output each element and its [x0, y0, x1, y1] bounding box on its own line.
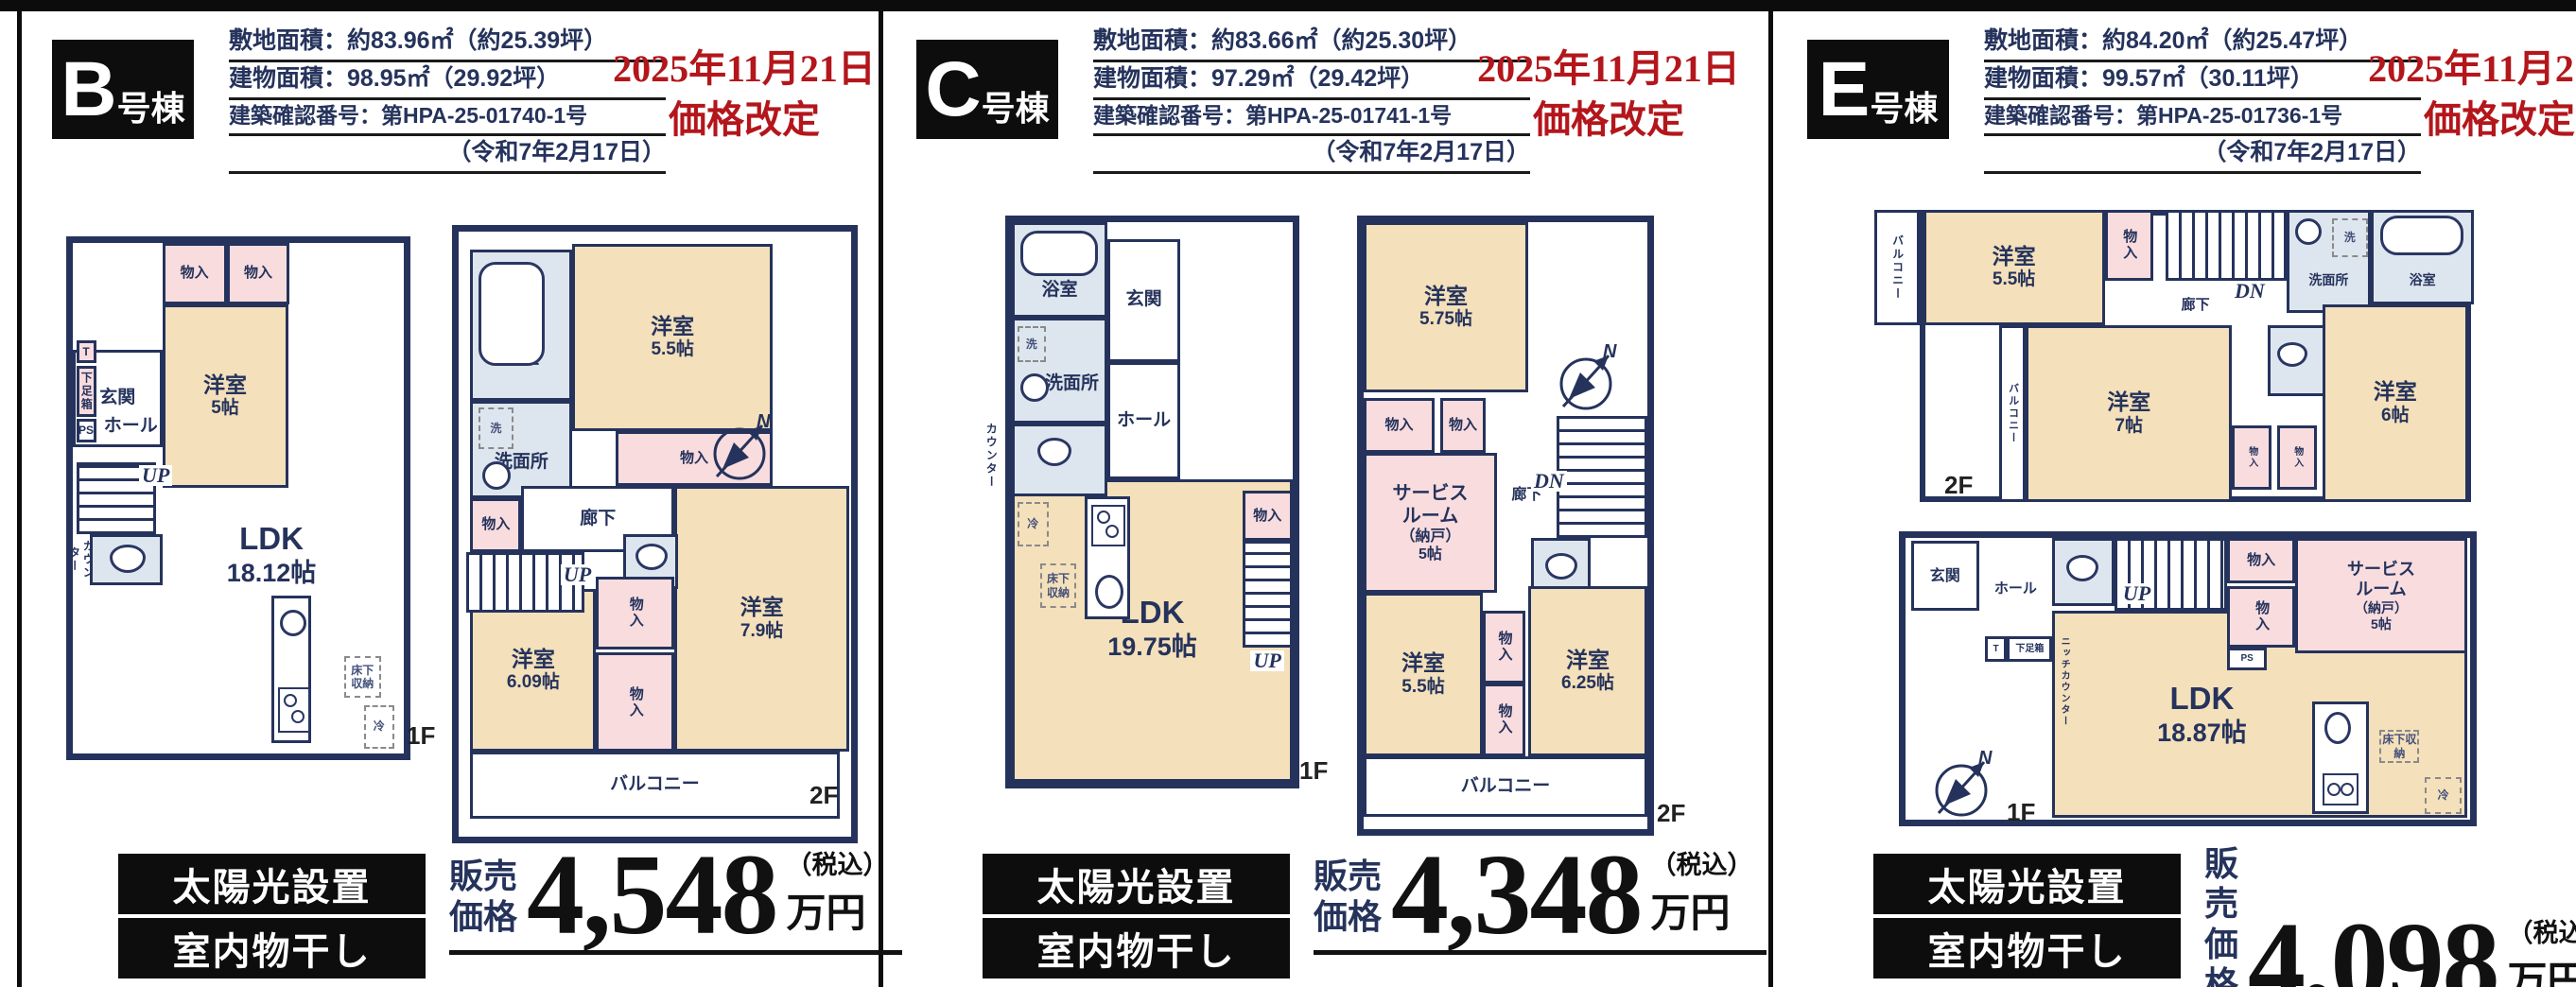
notice-date: 2025年11月21日: [607, 43, 881, 95]
room-name: バルコニー: [1461, 776, 1551, 798]
washer-space: 洗: [479, 407, 513, 450]
room-name: バルコニー: [2006, 383, 2018, 444]
top-border-bar: [0, 0, 2576, 11]
room-name: サービス ルーム: [1393, 482, 1469, 528]
room-name: 物入: [1449, 417, 1477, 434]
badge-solar: 太陽光設置: [118, 854, 426, 914]
stairs-up-label: UP: [1250, 650, 1283, 671]
price-suffix: （税込） 万円: [1651, 844, 1753, 943]
site-area: 敷地面積：約83.66㎡（約25.30坪）: [1093, 25, 1530, 62]
room-hall: ホール: [1107, 362, 1180, 479]
room-name: 廊下: [2182, 297, 2210, 314]
shoe-cabinet: 下足箱: [77, 366, 96, 417]
fridge-space: 冷: [1018, 502, 1049, 546]
notice-date: 2025年11月21日: [2362, 43, 2576, 95]
closet: 物入: [2277, 425, 2317, 491]
stairs-down: [2166, 210, 2287, 281]
room-size: 5帖: [211, 398, 239, 420]
room-name: 物入: [2120, 229, 2137, 261]
stove-icon: [1091, 505, 1125, 546]
room-hall: ホール: [1979, 546, 2053, 631]
stairs-up: [1243, 541, 1293, 647]
permit-number: 建築確認番号：第HPA-25-01740-1号: [229, 100, 666, 136]
room-name: 物入: [2246, 446, 2257, 469]
toilet-icon: [110, 545, 146, 573]
closet: 物入: [2232, 425, 2271, 491]
room-name: 洋室: [740, 595, 784, 621]
plan-b-1f: LDK 18.12帖 洋室 5帖 物入 物入 玄関 T 下足箱 PS ホール U…: [66, 236, 410, 760]
room-name: 物入: [1496, 703, 1513, 736]
room: 洋室 5.75帖: [1364, 222, 1528, 392]
fridge-space: 冷: [364, 705, 394, 749]
room-size: 7.9帖: [740, 621, 783, 643]
closet: 物入: [2105, 210, 2153, 281]
building-b-label: B 号棟: [52, 40, 194, 139]
toilet-icon: [1037, 438, 1071, 466]
stairs-down: [1557, 416, 1647, 537]
price-unit: 万円: [787, 881, 866, 939]
closet: 物入: [163, 243, 227, 304]
room-name: 洋室: [651, 314, 694, 340]
room-name: 洋室: [1566, 648, 1610, 674]
stairs-up-label: UP: [561, 564, 594, 585]
washer-space: 洗: [1018, 326, 1046, 362]
room-name: ニッチカウンター: [2058, 636, 2069, 727]
room-name: 物入: [2291, 446, 2303, 469]
floor-label: 2F: [1657, 799, 1685, 828]
room-name: 物入: [627, 686, 644, 719]
stairs-up-label: UP: [139, 465, 172, 486]
room-fill: [73, 570, 163, 753]
price-block: 販売 価格 4,098 （税込） 万円: [2204, 844, 2576, 987]
room-name: 洋室: [512, 647, 555, 673]
room: 洋室 7帖: [2026, 325, 2232, 502]
room-corridor: 廊下: [2153, 286, 2238, 325]
floor-storage: 床下収納: [2379, 730, 2419, 764]
room-size: 18.87帖: [2157, 718, 2247, 748]
closet: 物入: [596, 577, 674, 649]
room: 洋室 5.5帖: [1923, 210, 2105, 325]
room-name: 物入: [2247, 552, 2275, 569]
room-fill: [1486, 392, 1528, 453]
permit-date: （令和7年2月17日）: [229, 136, 666, 174]
floor-storage: 床下収納: [1040, 563, 1077, 608]
room: LDK 18.87帖: [2103, 665, 2301, 763]
floor-storage: 床下収納: [344, 656, 381, 697]
room: 洋室 7.9帖: [674, 486, 849, 753]
shoe-tag-t: T: [77, 340, 96, 363]
closet: 物入: [1243, 491, 1293, 541]
price-block: 販売 価格 4,548 （税込） 万円: [449, 844, 902, 955]
room-name: 浴室: [2410, 272, 2436, 288]
room-name: 洗: [1026, 338, 1037, 351]
closet: 物入: [1483, 684, 1525, 756]
price-prefix: 販売 価格: [449, 857, 517, 943]
balcony: バルコニー: [1999, 325, 2027, 502]
room-name: 物入: [181, 265, 209, 282]
building-area: 建物面積：99.57㎡（30.11坪）: [1984, 62, 2421, 100]
compass-icon: N: [1929, 749, 1997, 821]
room-name: 下足箱: [79, 372, 93, 411]
room-name: ホール: [1994, 580, 2037, 597]
stove-icon: [2323, 773, 2358, 805]
room-name: 洗: [490, 422, 501, 435]
room-size: 18.12帖: [227, 558, 317, 588]
room-name: 洋室: [1993, 244, 2036, 270]
room-name: 洋室: [2107, 390, 2150, 416]
room-name: 洋室: [1401, 650, 1445, 677]
room-name: 洋室: [203, 372, 247, 399]
floor-label: 1F: [407, 721, 435, 751]
room-name: 物入: [627, 597, 644, 629]
room-size: （納戸） 5帖: [1400, 528, 1460, 563]
kitchen-counter: [2312, 701, 2369, 814]
closet: 物入: [470, 498, 521, 553]
room-name: 洗: [2344, 231, 2356, 244]
room-name: 玄関: [1126, 289, 1162, 311]
room-name: LDK: [1121, 594, 1185, 632]
room-name: ホール: [104, 416, 158, 438]
room-name: 洋室: [2374, 379, 2417, 406]
balcony: バルコニー: [470, 752, 839, 818]
room-name: 冷: [2438, 788, 2449, 802]
fridge-space: 冷: [2425, 777, 2462, 814]
closet: 物入: [2227, 586, 2295, 649]
room-name: 物入: [2253, 600, 2270, 632]
price-prefix: 販売 価格: [1314, 857, 1382, 943]
building-suffix: 号棟: [1870, 81, 1938, 130]
room-name: バルコニー: [1890, 234, 1904, 301]
building-c-info: 敷地面積：約83.66㎡（約25.30坪） 建物面積：97.29㎡（29.42坪…: [1093, 25, 1530, 174]
sink-icon: [1020, 373, 1049, 402]
room-name: T: [82, 345, 89, 358]
building-suffix: 号棟: [982, 81, 1050, 130]
room-name: 冷: [374, 719, 385, 733]
closet: 物入: [2227, 538, 2295, 583]
price-suffix: （税込） 万円: [2508, 912, 2576, 987]
sink-icon: [280, 610, 306, 636]
room-size: 19.75帖: [1107, 632, 1197, 662]
flyer-page: B 号棟 敷地面積：約83.96㎡（約25.39坪） 建物面積：98.95㎡（2…: [0, 0, 2576, 987]
badge-solar: 太陽光設置: [983, 854, 1290, 914]
floor-label: 2F: [809, 781, 838, 810]
price-amount: 4,348: [1391, 848, 1642, 943]
niche-counter-tag: ニッチカウンター: [2049, 622, 2078, 740]
plan-c-1f: LDK 19.75帖 浴室 玄関 下足箱 洗面所 洗 ホール 冷 床下収納 物入: [1005, 216, 1299, 788]
building-letter: E: [1819, 51, 1871, 129]
price-revision-notice: 2025年11月21日 価格改定: [607, 43, 881, 146]
sink-icon: [2324, 712, 2351, 744]
room-size: 5.75帖: [1419, 309, 1472, 331]
permit-number: 建築確認番号：第HPA-25-01741-1号: [1093, 100, 1530, 136]
room-name: 下足箱: [2015, 644, 2044, 655]
room: 洋室 6.09帖: [470, 589, 596, 753]
kitchen-counter: [1085, 496, 1130, 619]
notice-date: 2025年11月21日: [1471, 43, 1746, 95]
permit-number: 建築確認番号：第HPA-25-01736-1号: [1984, 100, 2421, 136]
room-name: 物入: [680, 450, 708, 467]
room-name: PS: [78, 424, 94, 437]
pipe-space: PS: [77, 419, 96, 442]
permit-date: （令和7年2月17日）: [1984, 136, 2421, 174]
room-size: 5.5帖: [1993, 269, 2035, 291]
divider-b-c: [879, 11, 883, 987]
room-name: 物入: [481, 516, 510, 533]
room-service: サービス ルーム （納戸） 5帖: [1364, 453, 1497, 593]
building-letter: B: [61, 51, 116, 129]
badge-indoor-drying: 室内物干し: [983, 918, 1290, 978]
floor-label: 2F: [1944, 471, 1973, 500]
building-e-info: 敷地面積：約84.20㎡（約25.47坪） 建物面積：99.57㎡（30.11坪…: [1984, 25, 2421, 174]
balcony: バルコニー: [1364, 756, 1647, 817]
room-name: サービス ルーム: [2347, 560, 2415, 600]
room-name: 床下収納: [346, 664, 379, 691]
room-name: バルコニー: [610, 774, 700, 796]
site-area: 敷地面積：約83.96㎡（約25.39坪）: [229, 25, 666, 62]
room: LDK 19.75帖: [1054, 558, 1251, 698]
stove-icon: [278, 687, 310, 733]
washer-space: 洗: [2332, 218, 2368, 257]
notice-text: 価格改定: [2362, 95, 2576, 146]
divider-c-e: [1768, 11, 1773, 987]
bathtub-icon: [1020, 231, 1098, 276]
compass-icon: N: [1554, 342, 1622, 414]
closet: 物入: [227, 243, 290, 304]
room: 洋室 5.5帖: [1364, 593, 1483, 756]
building-area: 建物面積：97.29㎡（29.42坪）: [1093, 62, 1530, 100]
building-c-label: C 号棟: [916, 40, 1058, 139]
closet: 物入: [1364, 398, 1435, 453]
price-suffix: （税込） 万円: [787, 844, 889, 943]
closet: 物入: [1440, 398, 1486, 453]
badge-solar: 太陽光設置: [1873, 854, 2181, 914]
room-size: 7帖: [2115, 416, 2143, 438]
room-name: 冷: [1027, 517, 1038, 530]
notice-text: 価格改定: [607, 95, 881, 146]
plan-c-2f: 洋室 5.75帖 物入 物入 サービス ルーム （納戸） 5帖 廊下 DN 洋室…: [1357, 216, 1654, 836]
room-name: 物入: [1496, 631, 1513, 663]
room: 洋室 5.5帖: [572, 244, 773, 431]
building-letter: C: [925, 51, 981, 129]
room-name: カウンター: [984, 423, 998, 489]
price-revision-notice: 2025年11月21日 価格改定: [2362, 43, 2576, 146]
room-name: 物入: [244, 265, 272, 282]
room-name: ホール: [1117, 410, 1171, 432]
room-size: 6.09帖: [507, 672, 560, 694]
room: 洋室 5帖: [163, 304, 288, 488]
stairs-up-label: UP: [2120, 583, 2153, 604]
room-size: 6.25帖: [1561, 673, 1614, 695]
room-name: 洋室: [1424, 284, 1468, 310]
left-border-line: [17, 11, 22, 987]
price-unit: 万円: [1651, 881, 1731, 939]
room-name: 洗面所: [1045, 373, 1099, 395]
price-unit: 万円: [2508, 949, 2576, 987]
price-amount: 4,548: [527, 848, 777, 943]
room-name: T: [1993, 644, 1998, 655]
room-name: LDK: [2169, 680, 2234, 718]
compass-icon: N: [707, 412, 775, 484]
toilet-icon: [635, 544, 668, 570]
building-area: 建物面積：98.95㎡（29.92坪）: [229, 62, 666, 100]
room-size: （納戸） 5帖: [2355, 600, 2408, 632]
room-name: 廊下: [580, 509, 616, 530]
price-tax: （税込）: [1651, 844, 1753, 881]
room-name: PS: [2241, 653, 2254, 665]
pipe-space: PS: [2227, 648, 2267, 670]
price-block: 販売 価格 4,348 （税込） 万円: [1314, 844, 1767, 955]
room-service: サービス ルーム （納戸） 5帖: [2295, 538, 2467, 653]
bathtub-icon: [2380, 216, 2463, 255]
room-size: 5.5帖: [1401, 677, 1444, 699]
kitchen-counter: [271, 596, 311, 744]
price-revision-notice: 2025年11月21日 価格改定: [1471, 43, 1746, 146]
room-name: 洗面所: [2308, 272, 2348, 288]
floor-label: 1F: [1299, 756, 1328, 786]
price-amount: 4,098: [2248, 916, 2498, 987]
sink-icon: [482, 461, 511, 490]
building-suffix: 号棟: [117, 81, 185, 130]
sink-icon: [1095, 575, 1123, 609]
price-prefix: 販売 価格: [2204, 844, 2238, 987]
badge-indoor-drying: 室内物干し: [1873, 918, 2181, 978]
room-size: 5.5帖: [651, 339, 693, 361]
room-name: 玄関: [1930, 567, 1960, 585]
shoe-cabinet: 下足箱: [2007, 636, 2052, 662]
room: 洋室 6帖: [2323, 304, 2468, 502]
room-hall: ホール: [99, 396, 163, 458]
room-name: 浴室: [1041, 280, 1077, 302]
counter-tag: カウンター: [73, 534, 90, 585]
room-name: LDK: [239, 520, 304, 558]
building-b-info: 敷地面積：約83.96㎡（約25.39坪） 建物面積：98.95㎡（29.92坪…: [229, 25, 666, 174]
site-area: 敷地面積：約84.20㎡（約25.47坪）: [1984, 25, 2421, 62]
room-entrance: 玄関: [1107, 239, 1180, 362]
price-tax: （税込）: [2508, 912, 2576, 949]
floor-label: 1F: [2007, 798, 2035, 827]
counter-tag: カウンター: [980, 418, 1002, 493]
plan-b-2f: 洋室 7.9帖 洋室 5.5帖 洋室 6.09帖 浴室 洗面所 洗 物入 廊下 …: [452, 225, 858, 843]
permit-date: （令和7年2月17日）: [1093, 136, 1530, 174]
closet: 物入: [1483, 611, 1525, 684]
badge-indoor-drying: 室内物干し: [118, 918, 426, 978]
price-tax: （税込）: [787, 844, 889, 881]
balcony: バルコニー: [1874, 210, 1920, 325]
shoe-tag-t: T: [1985, 636, 2008, 662]
stairs-down-label: DN: [1531, 471, 1567, 492]
room-size: 6帖: [2381, 406, 2410, 427]
room-entrance: 玄関: [1911, 541, 1979, 612]
room-name: 物入: [1384, 417, 1413, 434]
room-name: 物入: [1253, 508, 1281, 525]
closet: 物入: [596, 652, 674, 753]
bathtub-icon: [479, 262, 545, 366]
plan-e-2f: バルコニー 洋室 5.5帖 物入 DN 廊下 洗面所 洗 浴室 バルコニー 洋室…: [1869, 210, 2474, 505]
building-e-label: E 号棟: [1807, 40, 1949, 139]
room-name: 床下収納: [2381, 733, 2417, 760]
notice-text: 価格改定: [1471, 95, 1746, 146]
room: 洋室 6.25帖: [1528, 586, 1647, 756]
room-name: 床下収納: [1042, 572, 1075, 599]
room: LDK 18.12帖: [172, 498, 371, 611]
